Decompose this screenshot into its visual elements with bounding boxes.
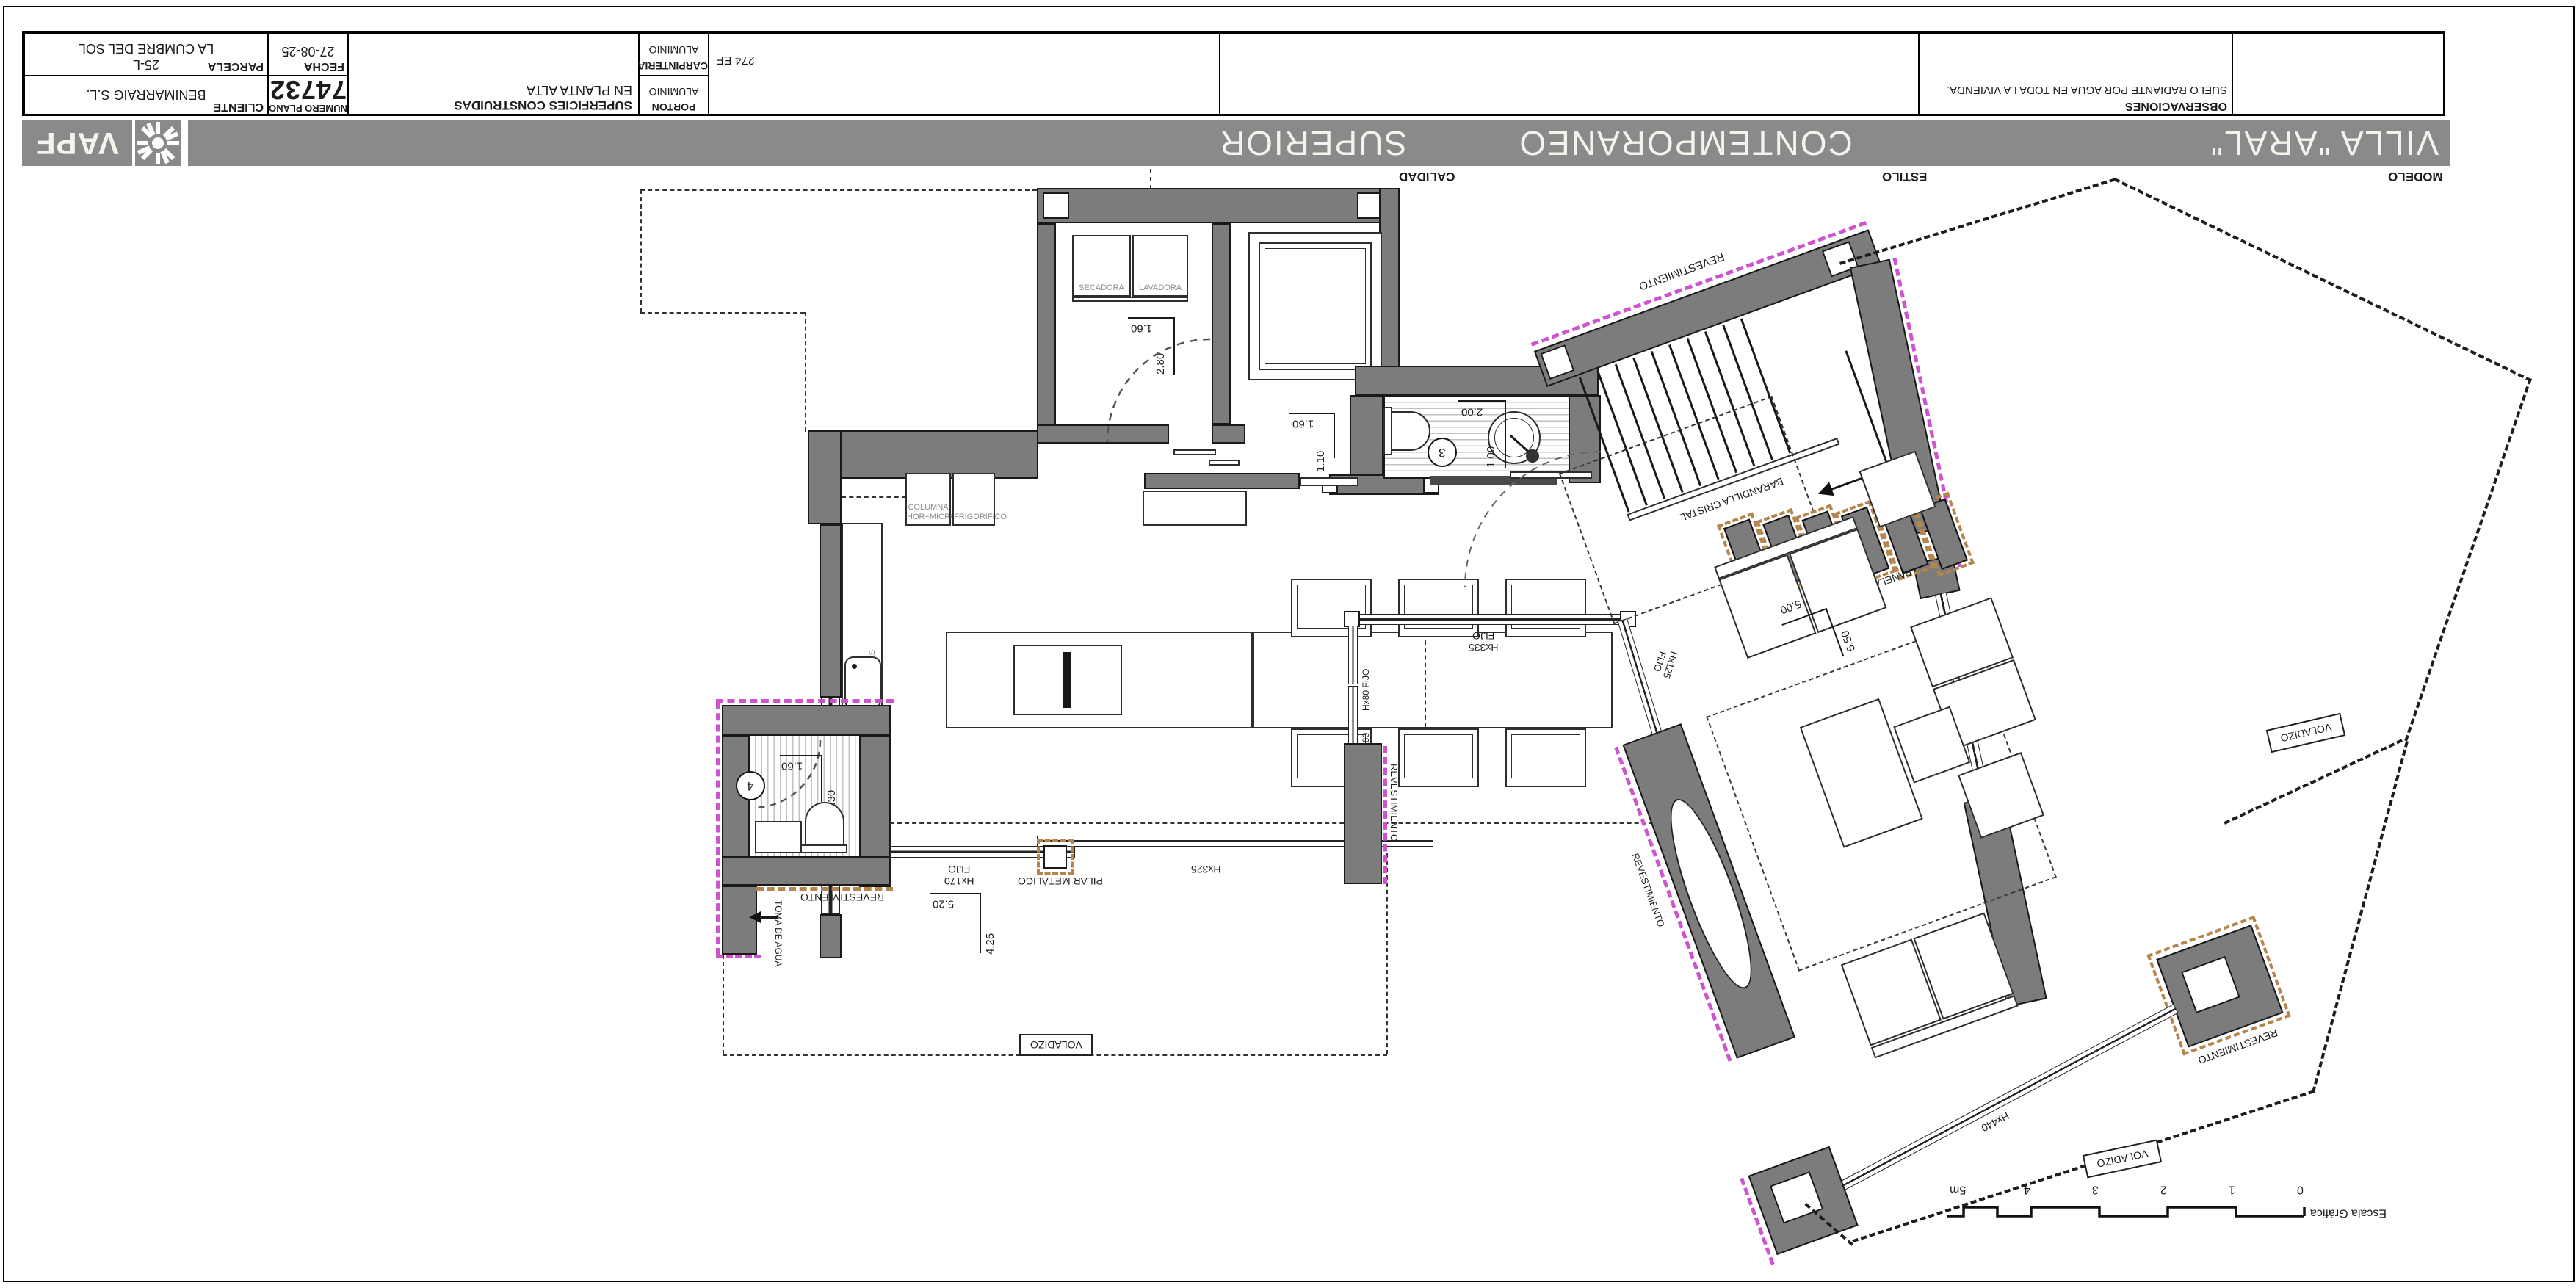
voladizo-box-label: VOLADIZO: [1019, 1034, 1093, 1056]
toma-de-agua-label: TOMA DE AGUA: [773, 900, 783, 988]
wardrobe: [1143, 491, 1247, 526]
dim-kitchen-width: 5.20: [933, 897, 954, 910]
cliente-cell: CLIENTE BENIMARRAIG S.L.: [24, 76, 268, 116]
dim-line: [930, 893, 981, 894]
columna-label1: COLUMNA: [907, 503, 949, 513]
wall: [1037, 188, 1400, 223]
dim-line: [1334, 413, 1335, 458]
dim-line: [1289, 413, 1335, 414]
overhang-dashed: [640, 312, 805, 314]
dim-line: [780, 755, 822, 756]
revestimiento-label: REVESTIMIENTO: [1388, 764, 1399, 881]
parcela-line1: LA CUMBRE DEL SOL: [25, 40, 267, 56]
wall: [1212, 223, 1231, 424]
numero-plano-value: 74732: [269, 74, 347, 105]
scale-tick-3: 3: [2092, 1182, 2099, 1195]
lavadora-label: LAVADORA: [1134, 283, 1187, 293]
wall: [1212, 424, 1245, 444]
appliance-shelf: [1072, 297, 1188, 302]
porton-label: PORTON: [640, 101, 708, 113]
overhang-dashed: [640, 189, 642, 312]
secadora-label: SECADORA: [1074, 283, 1129, 293]
revestimiento-magenta-dashed: [716, 702, 720, 955]
estilo-value: CONTEMPORANEO: [1518, 123, 1852, 163]
scale-tick-2: 2: [2160, 1182, 2167, 1195]
cooktop-grill: [1063, 652, 1071, 708]
window-h80b: [1348, 686, 1358, 745]
chair: [1505, 728, 1586, 787]
columna-cabinet: COLUMNA HOR+MICRO: [905, 473, 951, 526]
wall: [808, 430, 842, 524]
columna-label2: HOR+MICRO: [907, 513, 949, 522]
dim-line: [980, 893, 981, 953]
scale-bar: [1947, 1191, 2304, 1225]
revestimiento-label: REVESTIMIENTO: [800, 891, 884, 903]
superficies-cell: SUPERFICIES CONSTRUIDAS EN PLANTA ALTA: [348, 33, 639, 116]
wall: [1350, 395, 1383, 479]
dim-bath3-width: 2.00: [1461, 405, 1483, 418]
frigorifico-label: FRIGORIFICO: [954, 513, 994, 522]
dining-table: [1253, 632, 1613, 728]
window-h335: [1351, 614, 1629, 625]
room-number-3: 3: [1428, 438, 1457, 467]
revestimiento-tan-dashed: [756, 887, 893, 891]
carpinteria-value: ALUMINIO: [640, 44, 708, 56]
door-hardware: [1173, 449, 1216, 455]
chair: [1398, 728, 1479, 787]
revestimiento-magenta-dashed: [1383, 746, 1387, 884]
observaciones-text: SUELO RADIANTE POR AGUA EN TODA LA VIVIE…: [1947, 84, 2227, 96]
title-band: SUPERIOR CONTEMPORANEO VILLA "ARAL": [188, 120, 2450, 166]
voladizo-dashed: [723, 955, 724, 1054]
door-arc: [1107, 339, 1210, 442]
dim-line: [1128, 317, 1175, 319]
window-h80-label: Hx80 FIJO: [1361, 630, 1372, 711]
scale-tick-1: 1: [2229, 1182, 2235, 1195]
wall: [722, 856, 891, 886]
overhang-dashed: [805, 312, 806, 432]
calidad-value: SUPERIOR: [1219, 123, 1407, 163]
scale-tick-5: 5m: [1950, 1182, 1966, 1195]
wall-gap: [1344, 611, 1360, 627]
vapf-logo-text: VAPF: [36, 126, 119, 161]
carpinteria-label: CARPINTERIA: [640, 60, 708, 72]
modelo-value: VILLA "ARAL": [2210, 123, 2439, 163]
sunburst-icon: [135, 120, 181, 166]
parcela-line2: 25-L: [25, 57, 267, 72]
vapf-logo-block: VAPF: [22, 120, 132, 166]
fecha-value: 27-08-25: [269, 43, 347, 59]
pilar-metalico: [1043, 845, 1067, 869]
estilo-label: ESTILO: [1882, 169, 1927, 184]
parcela-cell: PARCELA 25-L LA CUMBRE DEL SOL: [24, 33, 268, 76]
kitchen-faucet: [852, 664, 857, 669]
dim-line: [821, 755, 822, 802]
superficie-total-cell: 274 EF: [709, 33, 1220, 116]
window-h335-label: Hx335FIJO: [1469, 630, 1498, 654]
entry-door-track: [1144, 473, 1300, 489]
numero-plano-cell: NUMERO PLANO 74732: [268, 76, 348, 116]
carpinteria-cell: CARPINTERIA ALUMINIO: [639, 33, 709, 76]
wall: [820, 524, 842, 698]
cliente-value: BENIMARRAIG S.L.: [25, 87, 267, 102]
scale-label: Escala Gráfica: [2310, 1206, 2387, 1219]
window-h170-label: Hx170FIJO: [944, 864, 974, 887]
fecha-label: FECHA: [304, 59, 344, 73]
window-h325-label: Hx325: [1191, 864, 1220, 875]
scale-tick-4: 4: [2024, 1182, 2030, 1195]
wall: [1037, 223, 1056, 444]
water-arrow-line: [759, 916, 778, 919]
toilet-tank: [1383, 407, 1392, 455]
overhang-dashed: [640, 189, 1037, 191]
pilar-label: PILAR METÁLICO: [1018, 875, 1103, 887]
dim-hall-width: 1.60: [1292, 417, 1314, 430]
lavadora-appliance: LAVADORA: [1132, 235, 1188, 297]
porton-value: ALUMINIO: [640, 86, 708, 98]
observaciones-label: OBSERVACIONES: [2125, 99, 2227, 112]
observaciones-cell: OBSERVACIONES SUELO RADIANTE POR AGUA EN…: [1919, 33, 2232, 116]
wall: [722, 705, 891, 736]
entry-door-leaf: [1300, 477, 1358, 486]
dim-hall-depth: 1.10: [1314, 432, 1327, 472]
wall: [820, 914, 842, 958]
room-number-4: 4: [736, 771, 765, 800]
door-arc: [753, 740, 820, 808]
calidad-label: CALIDAD: [1399, 169, 1455, 184]
modelo-label: MODELO: [2388, 169, 2443, 184]
empty-cell: [1220, 33, 1919, 116]
porton-cell: PORTON ALUMINIO: [639, 76, 709, 116]
frigorifico-cabinet: FRIGORIFICO: [952, 473, 995, 526]
dim-bath4-width: 1.60: [781, 759, 803, 772]
chair: [1398, 579, 1479, 637]
chair: [1505, 579, 1586, 637]
dim-line: [1458, 400, 1506, 402]
scale-tick-0: 0: [2297, 1182, 2304, 1195]
revestimiento-magenta-dashed: [716, 699, 894, 703]
overhang-dashed: [1150, 169, 1151, 189]
title-block: PARCELA 25-L LA CUMBRE DEL SOL CLIENTE B…: [22, 31, 2445, 116]
secadora-appliance: SECADORA: [1072, 235, 1131, 297]
elevator-shaft-inner2: [1265, 248, 1366, 364]
toilet: [805, 802, 844, 846]
superficies-line2: EN PLANTA ALTA: [527, 82, 632, 98]
empty-cell-right: [2232, 33, 2445, 116]
vanity: [755, 821, 802, 853]
window-h80: [1348, 626, 1358, 684]
water-arrow: [749, 911, 761, 923]
superficies-line1: SUPERFICIES CONSTRUIDAS: [454, 98, 632, 112]
wall-gap: [1043, 192, 1069, 219]
roof-line-dashed: [890, 822, 1698, 824]
superficie-total: 274 EF: [717, 53, 755, 66]
table-divider: [1425, 633, 1426, 727]
dim-laundry-width: 1.60: [1131, 322, 1152, 334]
chair: [1291, 579, 1372, 637]
fecha-cell: FECHA 27-08-25: [268, 33, 348, 76]
wall: [1344, 743, 1382, 884]
dim-kitchen-depth: 4.25: [984, 911, 996, 955]
counter-dashed: [842, 496, 906, 498]
wall: [808, 430, 1038, 479]
plan-sheet: PARCELA 25-L LA CUMBRE DEL SOL CLIENTE B…: [0, 0, 2576, 1288]
toilet: [1389, 411, 1430, 451]
toilet-tank: [800, 844, 847, 853]
door-hardware: [1209, 460, 1240, 466]
